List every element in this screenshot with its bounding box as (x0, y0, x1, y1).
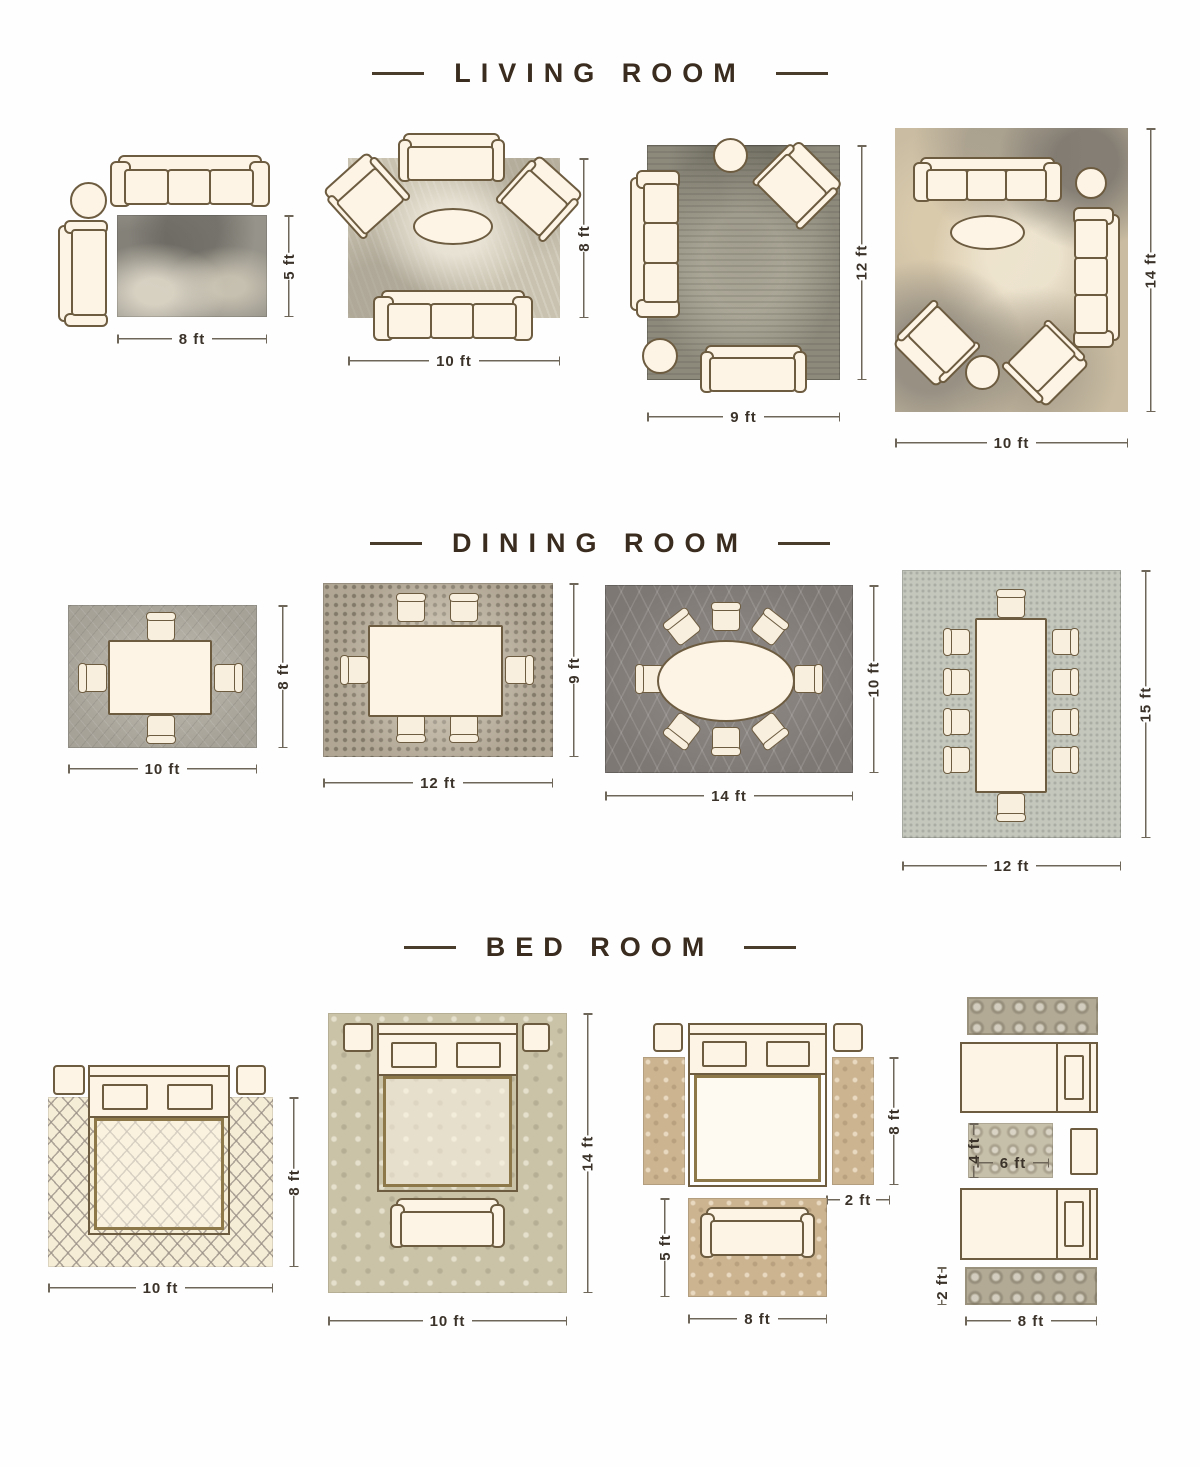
sofa-cushion (643, 262, 679, 303)
sofa-cushion (643, 222, 679, 263)
dimension-label: 12 ft (847, 245, 878, 281)
dining-chair (712, 605, 740, 631)
dining-chair (946, 629, 970, 655)
sofa-cushion (400, 1211, 494, 1247)
dining-chair (147, 615, 175, 641)
oval-coffee-table (413, 208, 493, 245)
dining-chair (343, 656, 369, 684)
dining-chair (794, 665, 820, 693)
dimension-label: 14 ft (704, 788, 754, 805)
rug-height-dimension: 12 ft (851, 145, 873, 380)
dimension-label: 9 ft (559, 657, 590, 684)
sofa-cushion (407, 146, 495, 181)
pillow (702, 1041, 747, 1067)
runner-width-dimension: 2 ft (826, 1189, 890, 1211)
dining-layout-10x8: 10 ft 8 ft (60, 600, 310, 780)
rug (117, 215, 267, 317)
title-dash (372, 72, 424, 75)
dining-chair (450, 714, 478, 740)
living-layout-8x5: 8 ft 5 ft (55, 150, 310, 360)
round-ottoman (642, 338, 678, 374)
bedroom-layout-10x8: 10 ft 8 ft (45, 1060, 310, 1315)
dimension-label: 10 ft (987, 435, 1037, 452)
runner-width-dimension: 8 ft (965, 1310, 1097, 1332)
runner-rug (832, 1057, 874, 1185)
rug-size-guide: LIVING ROOM 8 ft 5 ft (0, 0, 1200, 1467)
title-dash (778, 542, 830, 545)
section-title-living-room: LIVING ROOM (0, 58, 1200, 89)
sofa-cushion (709, 357, 797, 391)
pillow (766, 1041, 811, 1067)
dining-table (368, 625, 503, 717)
bed (688, 1023, 827, 1187)
dimension-label: 8 ft (737, 1311, 778, 1328)
rug-height-dimension: 8 ft (573, 158, 595, 318)
dining-chair (1052, 747, 1076, 773)
sofa-cushion (926, 169, 968, 201)
dimension-label: 5 ft (650, 1234, 681, 1261)
living-layout-10x8: 10 ft 8 ft (330, 128, 605, 378)
twin-bed (960, 1188, 1098, 1260)
dining-chair (397, 714, 425, 740)
dining-chair (946, 709, 970, 735)
dimension-label: 8 ft (279, 1169, 310, 1196)
bedroom-layout-10x14: 10 ft 14 ft (325, 1010, 610, 1340)
dining-chair (997, 793, 1025, 819)
rug-height-dimension: 14 ft (1140, 128, 1162, 412)
dimension-label: 2 ft (927, 1273, 958, 1300)
headboard (379, 1033, 516, 1035)
sofa (1073, 207, 1120, 348)
sofa-cushion (124, 169, 169, 206)
headboard (690, 1033, 825, 1035)
rug-width-dimension: 10 ft (48, 1277, 273, 1299)
living-layout-9x12: 9 ft 12 ft (625, 138, 885, 443)
dining-chair (397, 596, 425, 622)
rug-height-dimension: 8 ft (272, 605, 294, 748)
sofa-cushion (643, 183, 679, 224)
rug-width-dimension: 10 ft (348, 350, 560, 372)
section-title-dining-room: DINING ROOM (0, 528, 1200, 559)
pillow (102, 1084, 148, 1111)
sofa-cushion (209, 169, 254, 206)
dining-chair (712, 727, 740, 753)
nightstand (53, 1065, 85, 1095)
loveseat (700, 345, 807, 393)
sofa (630, 170, 680, 318)
sofa-cushion (710, 1220, 804, 1256)
headboard (90, 1075, 228, 1077)
between-rug-width-dimension: 6 ft (977, 1152, 1049, 1174)
bed-fold-line (1056, 1042, 1058, 1113)
round-side-table (70, 182, 107, 219)
bed-fold-line (1056, 1188, 1058, 1260)
section-title-bed-room: BED ROOM (0, 932, 1200, 963)
bedroom-layout-twin-beds: 4 ft 6 ft 2 ft 8 ft (925, 990, 1185, 1340)
sofa-cushion (430, 303, 475, 339)
dimension-label: 8 ft (569, 225, 600, 252)
bed-room-title: BED ROOM (486, 932, 715, 963)
sofa (700, 1207, 815, 1258)
blanket (94, 1118, 224, 1229)
bedroom-layout-runners: 8 ft 2 ft 5 ft 8 ft (640, 1020, 910, 1330)
rug-height-dimension: 10 ft (863, 585, 885, 773)
sofa (373, 290, 533, 341)
rug-width-dimension: 14 ft (605, 785, 853, 807)
rug-width-dimension: 9 ft (647, 406, 840, 428)
oval-dining-table (657, 640, 795, 722)
headboard (1089, 1042, 1098, 1113)
dining-chair (1052, 709, 1076, 735)
chaise (58, 220, 108, 327)
sofa-cushion (387, 303, 432, 339)
dimension-label: 10 ft (859, 661, 890, 697)
rug-height-dimension: 15 ft (1135, 570, 1157, 838)
dining-chair (505, 656, 531, 684)
title-dash (744, 946, 796, 949)
dimension-label: 5 ft (274, 253, 305, 280)
runner-height-dimension: 2 ft (931, 1267, 953, 1305)
pillow (456, 1042, 501, 1068)
runner-rug (965, 1267, 1097, 1305)
rug-height-dimension: 5 ft (278, 215, 300, 317)
rug-width-dimension: 10 ft (68, 758, 257, 780)
dining-table (975, 618, 1047, 793)
living-layout-10x14: 10 ft 14 ft (893, 125, 1173, 465)
dimension-label: 10 ft (138, 761, 188, 778)
dining-room-title: DINING ROOM (452, 528, 748, 559)
rug-width-dimension: 10 ft (328, 1310, 567, 1332)
dining-chair (81, 664, 107, 692)
dimension-label: 12 ft (987, 858, 1037, 875)
blanket (694, 1075, 821, 1182)
living-room-title: LIVING ROOM (454, 58, 746, 89)
sofa (913, 157, 1062, 202)
sofa-cushion (1074, 257, 1107, 297)
runner-rug (643, 1057, 685, 1185)
nightstand (1070, 1128, 1098, 1175)
runner-length-dimension: 8 ft (883, 1057, 905, 1185)
rug-height-dimension: 8 ft (283, 1097, 305, 1267)
dining-table (108, 640, 212, 715)
dining-chair (450, 596, 478, 622)
dining-chair (214, 664, 240, 692)
bed (88, 1065, 230, 1235)
dining-layout-12x9: 12 ft 9 ft (320, 580, 595, 815)
sofa-cushion (1005, 169, 1047, 201)
dimension-label: 6 ft (993, 1155, 1034, 1172)
pillow (167, 1084, 213, 1111)
nightstand (653, 1023, 683, 1052)
dimension-label: 15 ft (1131, 686, 1162, 722)
rug-width-dimension: 8 ft (117, 328, 267, 350)
title-dash (370, 542, 422, 545)
sofa-cushion (966, 169, 1008, 201)
nightstand (522, 1023, 550, 1052)
sofa-cushion (472, 303, 517, 339)
dimension-label: 10 ft (423, 1313, 473, 1330)
pillow (1064, 1055, 1084, 1101)
dining-chair (147, 715, 175, 741)
dimension-label: 8 ft (268, 663, 299, 690)
round-ottoman (965, 355, 1000, 390)
dimension-label: 10 ft (429, 353, 479, 370)
dimension-label: 10 ft (136, 1280, 186, 1297)
round-side-table (1075, 167, 1107, 199)
sofa-cushion (71, 229, 107, 317)
dining-chair (1052, 669, 1076, 695)
dining-layout-14x10: 14 ft 10 ft (605, 585, 890, 810)
title-dash (776, 72, 828, 75)
dining-layout-12x15: 12 ft 15 ft (900, 565, 1165, 890)
dining-chair (997, 592, 1025, 618)
dimension-label: 14 ft (573, 1135, 604, 1171)
dimension-label: 8 ft (879, 1108, 910, 1135)
blanket (383, 1076, 512, 1187)
nightstand (343, 1023, 373, 1052)
bench (390, 1198, 505, 1248)
dimension-label: 2 ft (838, 1192, 879, 1209)
sofa-cushion (1074, 294, 1107, 334)
nightstand (833, 1023, 863, 1052)
pillow (391, 1042, 436, 1068)
rug-height-dimension: 9 ft (563, 583, 585, 757)
dining-chair (946, 669, 970, 695)
foot-rug-width-dimension: 8 ft (688, 1308, 827, 1330)
nightstand (236, 1065, 266, 1095)
headboard (1089, 1188, 1098, 1260)
rug-width-dimension: 12 ft (323, 772, 553, 794)
pillow (1064, 1201, 1084, 1247)
sofa-cushion (1074, 219, 1107, 259)
dimension-label: 12 ft (413, 775, 463, 792)
oval-coffee-table (950, 215, 1025, 250)
title-dash (404, 946, 456, 949)
dimension-label: 9 ft (723, 409, 764, 426)
dining-chair (1052, 629, 1076, 655)
sofa (110, 155, 270, 207)
loveseat (398, 133, 505, 182)
dining-chair (946, 747, 970, 773)
twin-bed (960, 1042, 1098, 1113)
rug-width-dimension: 12 ft (902, 855, 1121, 877)
bed (377, 1023, 518, 1192)
dimension-label: 14 ft (1136, 252, 1167, 288)
foot-rug-height-dimension: 5 ft (654, 1198, 676, 1297)
runner-rug (967, 997, 1098, 1035)
dimension-label: 8 ft (1011, 1313, 1052, 1330)
rug-width-dimension: 10 ft (895, 432, 1128, 454)
sofa-cushion (167, 169, 212, 206)
rug-height-dimension: 14 ft (577, 1013, 599, 1293)
round-side-table (713, 138, 748, 173)
dimension-label: 8 ft (172, 331, 213, 348)
